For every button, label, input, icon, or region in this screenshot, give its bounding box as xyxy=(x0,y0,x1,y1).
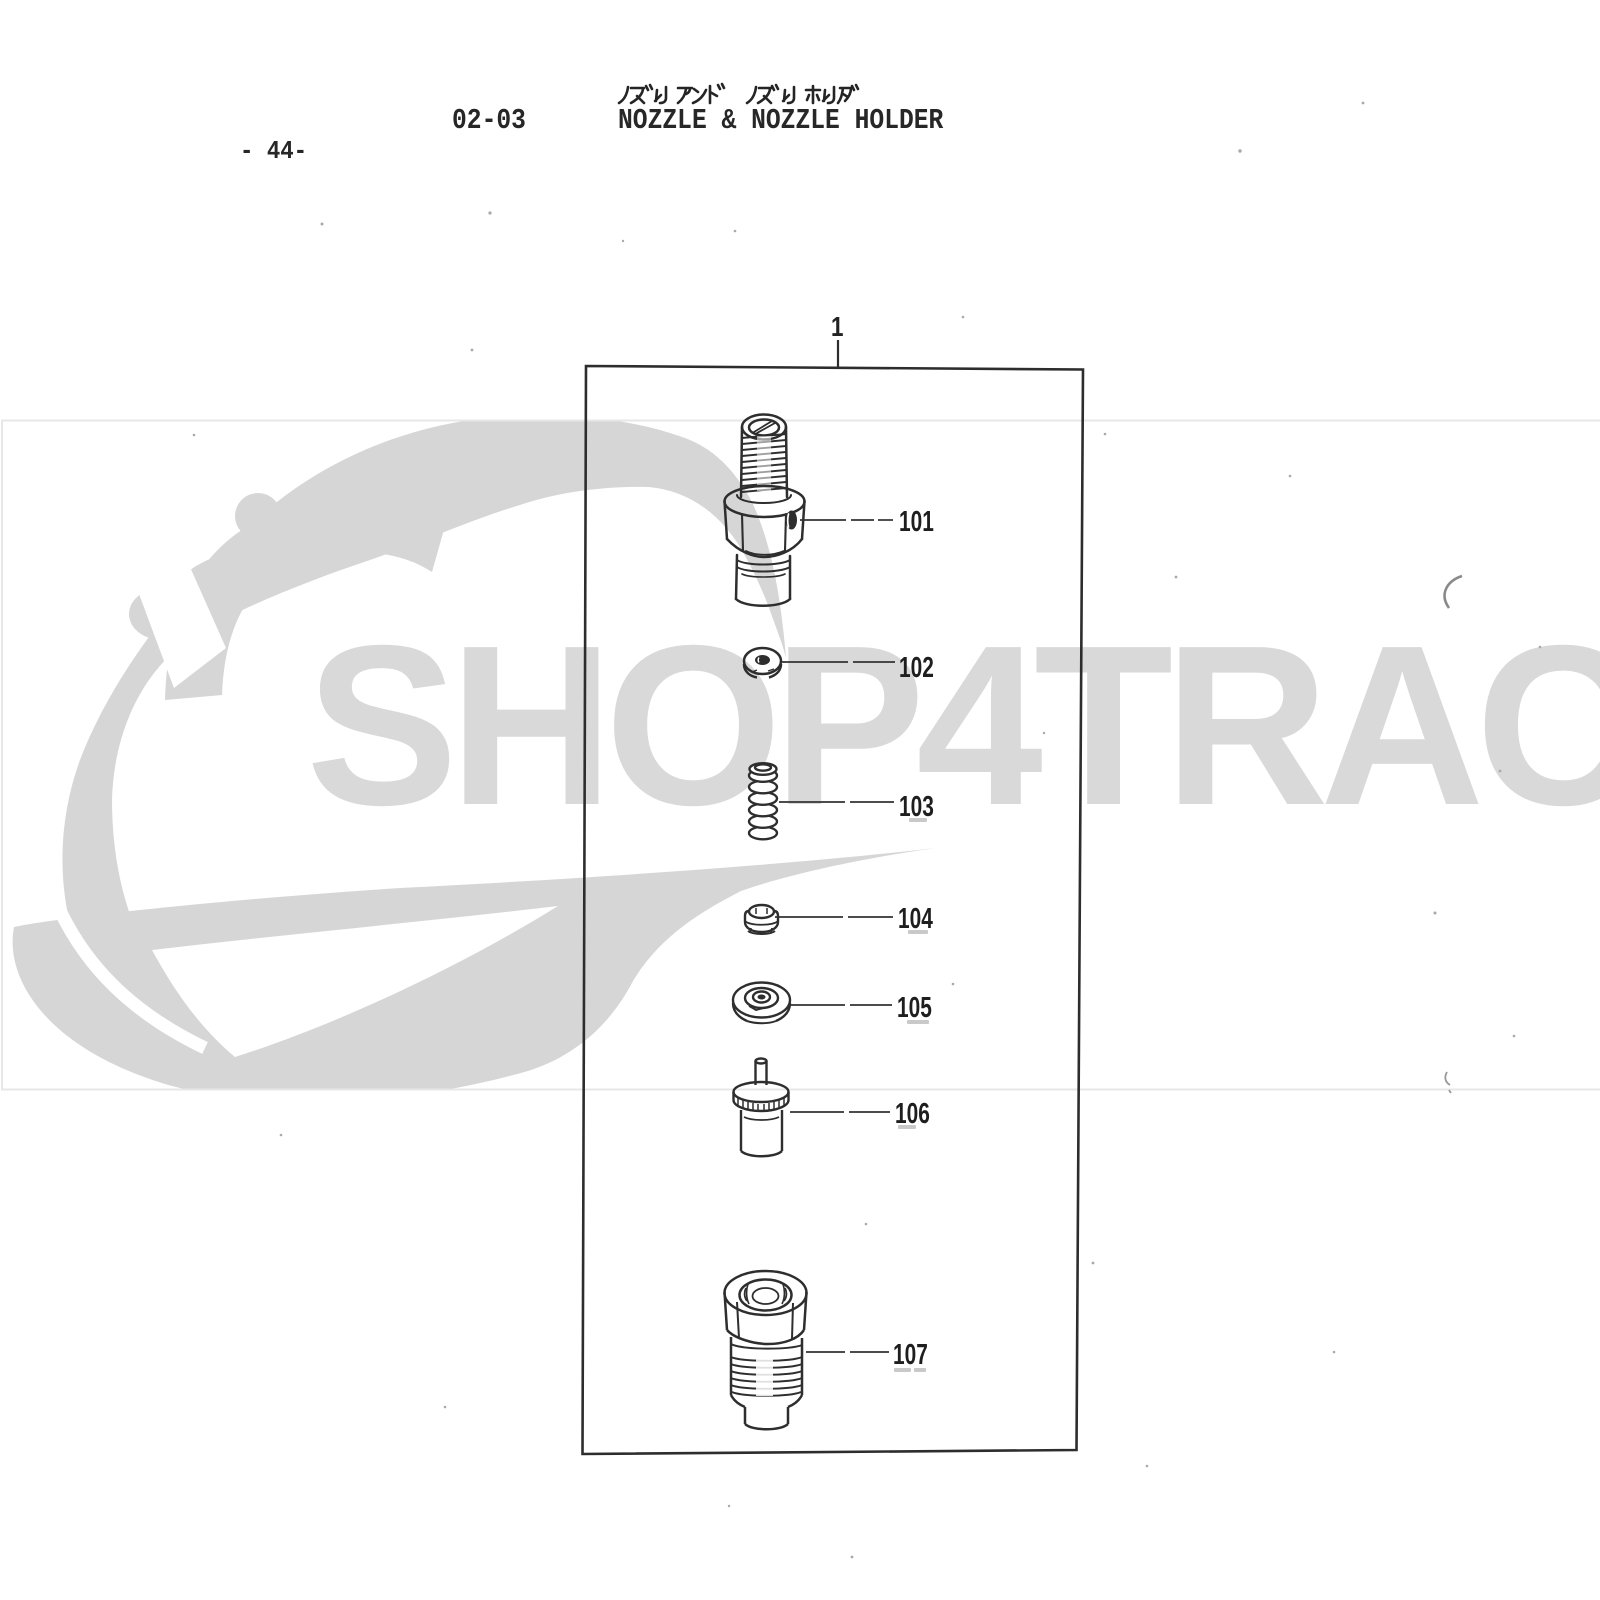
svg-text:02-03: 02-03 xyxy=(452,105,526,137)
svg-text:- 44-: - 44- xyxy=(240,138,307,167)
svg-text:101: 101 xyxy=(899,506,934,538)
svg-text:105: 105 xyxy=(897,992,932,1024)
svg-text:107: 107 xyxy=(893,1339,928,1371)
svg-text:1: 1 xyxy=(831,312,843,343)
svg-text:102: 102 xyxy=(899,652,934,684)
svg-text:NOZZLE & NOZZLE HOLDER: NOZZLE & NOZZLE HOLDER xyxy=(618,105,944,137)
